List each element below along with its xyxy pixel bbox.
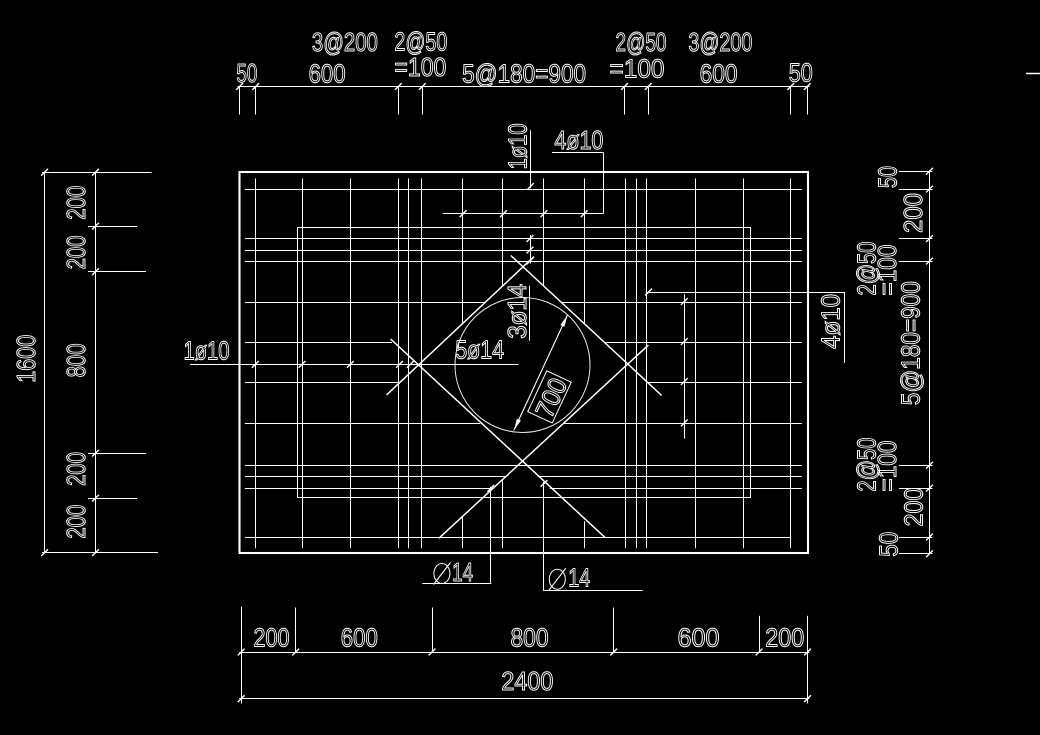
svg-text:800: 800 [511, 622, 549, 652]
svg-text:600: 600 [309, 58, 346, 88]
svg-text:5@180=900: 5@180=900 [462, 58, 586, 88]
svg-text:600: 600 [678, 622, 720, 652]
svg-text:50: 50 [872, 166, 902, 188]
svg-text:=100: =100 [394, 52, 446, 82]
svg-text:200: 200 [898, 488, 928, 527]
svg-text:50: 50 [236, 58, 257, 88]
svg-text:14: 14 [452, 557, 473, 587]
svg-text:200: 200 [61, 452, 91, 486]
svg-text:200: 200 [61, 235, 91, 269]
svg-text:=100: =100 [610, 54, 665, 84]
svg-text:4ø10: 4ø10 [554, 125, 603, 155]
svg-text:600: 600 [341, 622, 378, 652]
svg-text:=100: =100 [872, 441, 902, 492]
svg-text:14: 14 [568, 562, 590, 592]
svg-text:200: 200 [765, 622, 804, 652]
svg-text:50: 50 [873, 532, 903, 557]
svg-text:3@200: 3@200 [688, 27, 752, 57]
svg-text:800: 800 [61, 343, 91, 377]
svg-text:600: 600 [700, 58, 738, 88]
svg-text:200: 200 [61, 186, 91, 220]
svg-text:3ø14: 3ø14 [502, 284, 532, 339]
svg-text:2@50: 2@50 [616, 27, 667, 57]
svg-text:200: 200 [898, 193, 928, 233]
svg-text:1ø10: 1ø10 [184, 335, 230, 365]
svg-text:2400: 2400 [501, 666, 553, 696]
svg-text:3@200: 3@200 [312, 27, 378, 57]
svg-text:1ø10: 1ø10 [502, 123, 532, 169]
svg-text:50: 50 [789, 57, 813, 87]
svg-text:4ø10: 4ø10 [815, 294, 845, 349]
svg-text:1600: 1600 [11, 335, 41, 383]
svg-text:5@180=900: 5@180=900 [895, 281, 925, 405]
svg-text:200: 200 [61, 505, 91, 539]
svg-text:200: 200 [254, 622, 290, 652]
svg-text:5ø14: 5ø14 [455, 334, 504, 364]
